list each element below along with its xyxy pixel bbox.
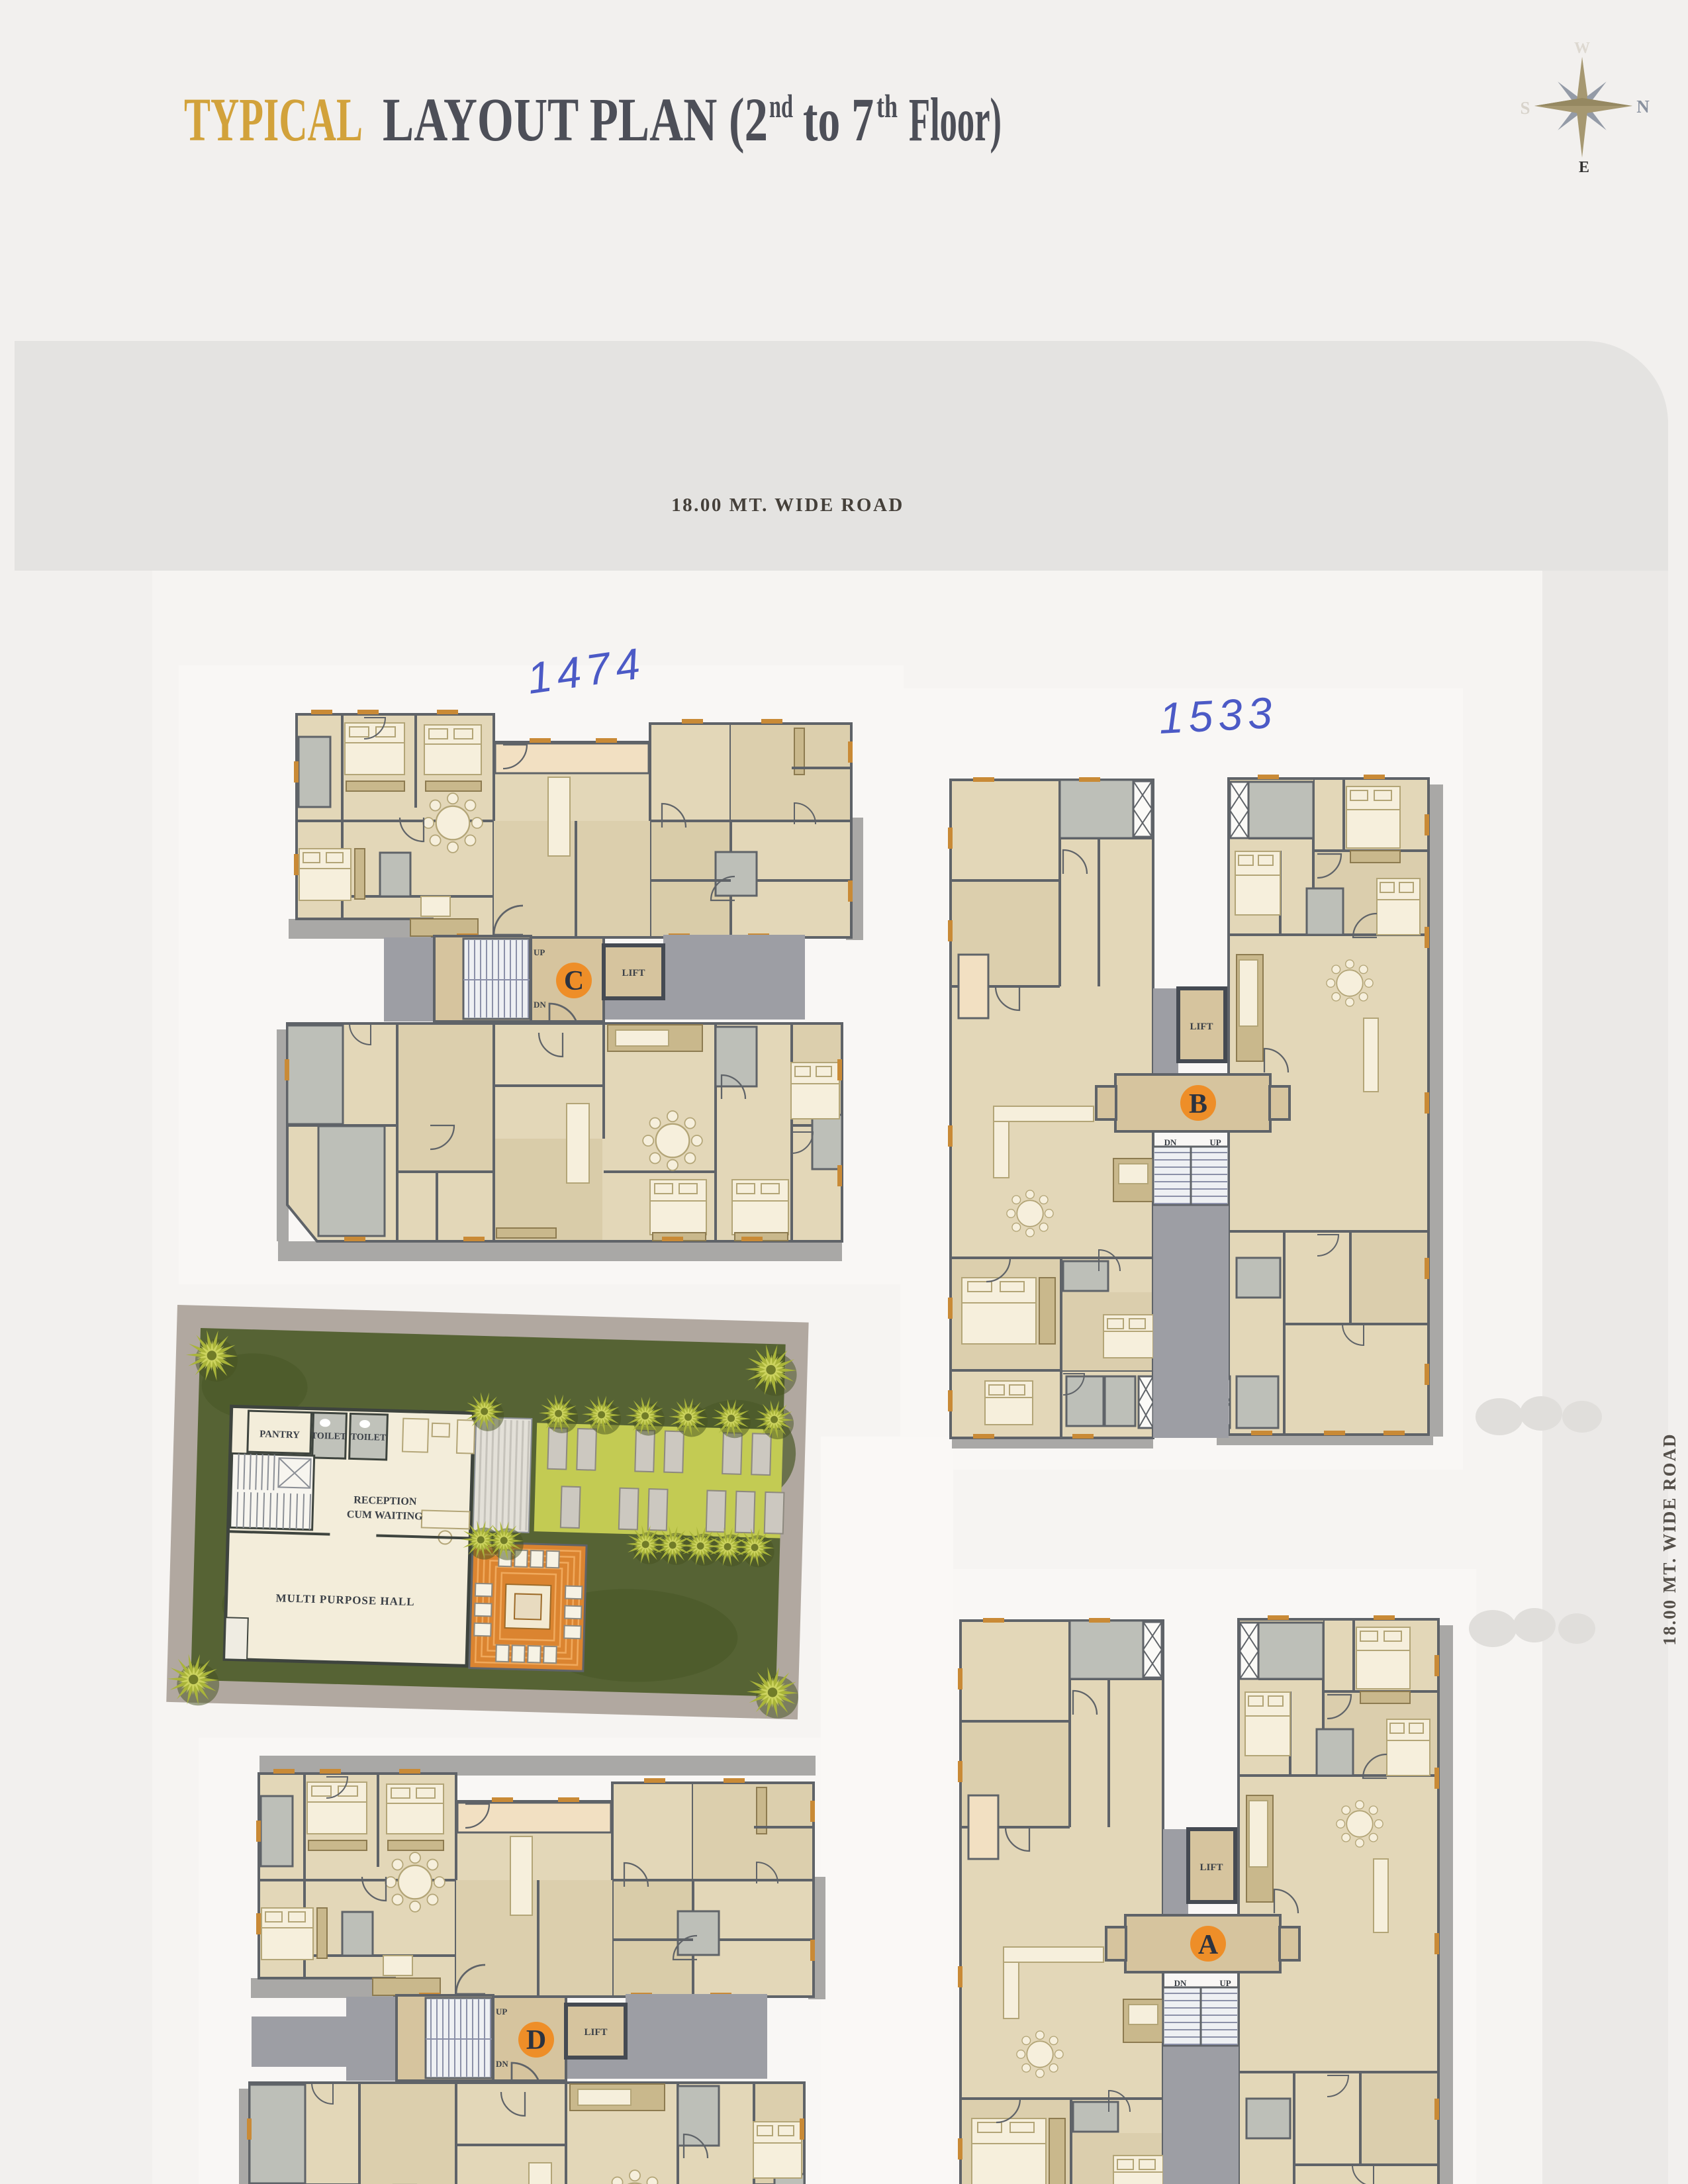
svg-text:Floor): Floor) (909, 86, 1002, 154)
svg-text:to 7: to 7 (803, 86, 874, 154)
svg-text:W: W (1574, 40, 1590, 57)
svg-text:S: S (1520, 98, 1530, 118)
svg-text:LIFT: LIFT (1190, 1021, 1213, 1032)
svg-text:UP: UP (534, 947, 545, 957)
svg-text:A: A (1198, 1930, 1219, 1960)
svg-text:1533: 1533 (1158, 688, 1278, 743)
svg-text:TYPICAL: TYPICAL (184, 86, 363, 154)
svg-text:th: th (876, 87, 898, 124)
svg-text:RECEPTION: RECEPTION (353, 1495, 417, 1508)
svg-text:N: N (1636, 97, 1650, 117)
svg-text:B: B (1189, 1089, 1207, 1119)
svg-text:UP: UP (496, 2007, 507, 2017)
svg-text:LIFT: LIFT (584, 2027, 607, 2038)
svg-text:LAYOUT PLAN (2: LAYOUT PLAN (2 (383, 86, 768, 154)
svg-text:PANTRY: PANTRY (259, 1429, 300, 1441)
svg-text:LIFT: LIFT (622, 968, 645, 978)
svg-text:nd: nd (769, 87, 793, 124)
svg-text:LIFT: LIFT (1199, 1862, 1223, 1873)
svg-text:CUM WAITING: CUM WAITING (347, 1509, 424, 1522)
svg-text:TOILET: TOILET (351, 1432, 387, 1443)
svg-text:18.00 MT. WIDE ROAD: 18.00 MT. WIDE ROAD (1660, 1433, 1679, 1645)
svg-text:TOILET: TOILET (311, 1431, 347, 1443)
svg-text:E: E (1579, 159, 1589, 176)
svg-text:18.00 MT. WIDE ROAD: 18.00 MT. WIDE ROAD (671, 495, 904, 516)
svg-text:C: C (564, 966, 584, 996)
svg-text:DN: DN (534, 1000, 546, 1010)
svg-text:DN: DN (496, 2059, 508, 2069)
svg-text:D: D (526, 2025, 546, 2056)
